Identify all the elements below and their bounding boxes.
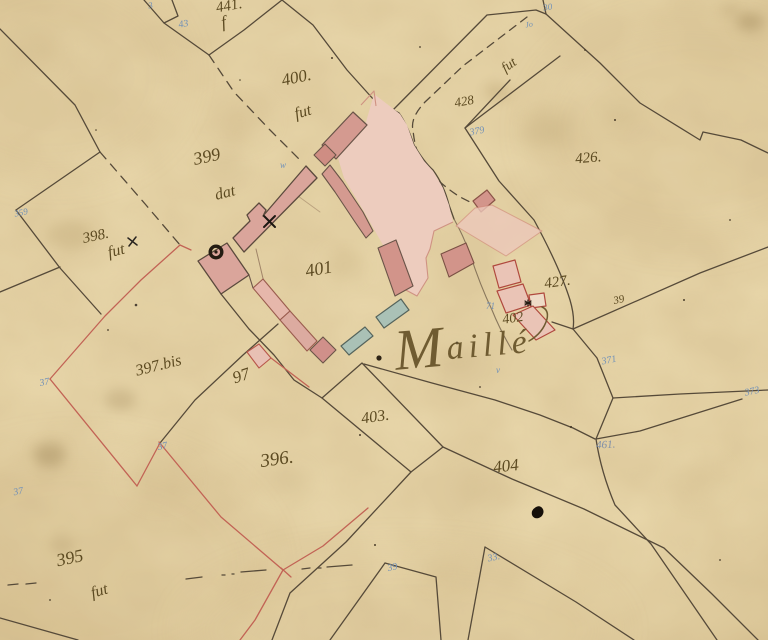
svg-text:404: 404: [492, 455, 520, 477]
svg-text:aillé: aillé: [445, 323, 533, 367]
svg-text:402: 402: [501, 310, 524, 328]
svg-text:39: 39: [386, 561, 399, 574]
svg-text:71: 71: [486, 301, 495, 311]
svg-text:w: w: [280, 160, 286, 170]
svg-text:426.: 426.: [575, 149, 603, 167]
svg-text:M: M: [391, 314, 448, 383]
svg-text:v: v: [496, 365, 500, 375]
svg-text:43: 43: [178, 18, 190, 31]
svg-text:461.: 461.: [596, 439, 616, 452]
svg-text:Jo: Jo: [525, 19, 534, 29]
